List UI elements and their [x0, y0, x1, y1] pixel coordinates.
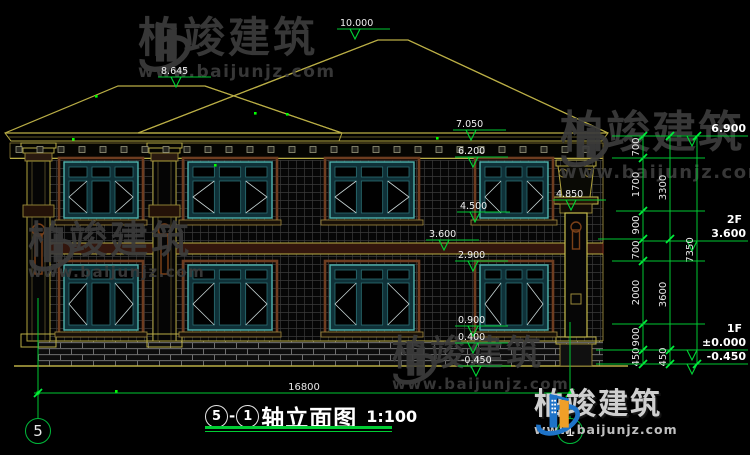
elevation-label: -0.450	[707, 350, 747, 363]
elevation-triangle	[439, 240, 449, 250]
elevation-label: 0.400	[458, 332, 485, 343]
elevation-triangle	[468, 261, 478, 271]
title-axis-start-bubble: 5	[205, 405, 228, 428]
elevation-triangle	[687, 350, 697, 360]
dimension-label: 1700	[631, 172, 642, 197]
elevation-label: 4.500	[460, 201, 487, 212]
elevation-label: 3.600	[429, 229, 456, 240]
title-underline-thin	[205, 431, 392, 432]
title-underline-thick	[205, 426, 392, 429]
dimension-label: 900	[631, 327, 642, 346]
grid-bubble-5: 5	[25, 418, 51, 444]
dimension-label: 2000	[631, 280, 642, 305]
dimension-label: 700	[631, 137, 642, 156]
elevation-triangle	[566, 200, 576, 210]
brand-logo-icon	[534, 389, 582, 443]
floor-label: 2F	[727, 213, 742, 226]
cad-elevation-drawing: 柏竣建筑 www.baijunjz.com 柏竣建筑 www.baijunjz.…	[0, 0, 750, 455]
overall-dimension-label: 16800	[288, 382, 320, 393]
dimension-label: 900	[631, 215, 642, 234]
dimension-label: 3600	[658, 282, 669, 307]
elevation-label: 6.200	[458, 146, 485, 157]
dimension-label: 7350	[685, 237, 696, 262]
brand-watermark-color: 柏竣建筑 www.baijunjz.com	[534, 389, 678, 437]
title-dash: -	[229, 407, 235, 425]
elevation-label: 0.900	[458, 315, 485, 326]
elevation-label: 3.600	[711, 227, 746, 240]
elevation-label: 4.850	[556, 189, 583, 200]
elevation-label: 10.000	[340, 18, 373, 29]
elevation-label: 8.645	[161, 66, 188, 77]
elevation-triangle	[468, 157, 478, 167]
dimension-label: 3300	[658, 175, 669, 200]
dimension-label: 700	[631, 240, 642, 259]
elevation-label: 7.050	[456, 119, 483, 130]
title-scale: 1:100	[366, 407, 417, 426]
elevation-triangle	[171, 77, 181, 87]
elevation-triangle	[471, 366, 481, 376]
floor-label: 1F	[727, 322, 742, 335]
title-axis-end-bubble: 1	[236, 405, 259, 428]
elevation-label: 6.900	[711, 122, 746, 135]
elevation-label: -0.450	[461, 355, 492, 366]
elevation-label: 2.900	[458, 250, 485, 261]
elevation-triangle	[350, 29, 360, 39]
elevation-triangle	[468, 343, 478, 353]
dimension-label: 450	[658, 347, 669, 366]
elevation-triangle	[470, 212, 480, 222]
elevation-triangle	[466, 130, 476, 140]
elevation-label: ±0.000	[702, 336, 746, 349]
